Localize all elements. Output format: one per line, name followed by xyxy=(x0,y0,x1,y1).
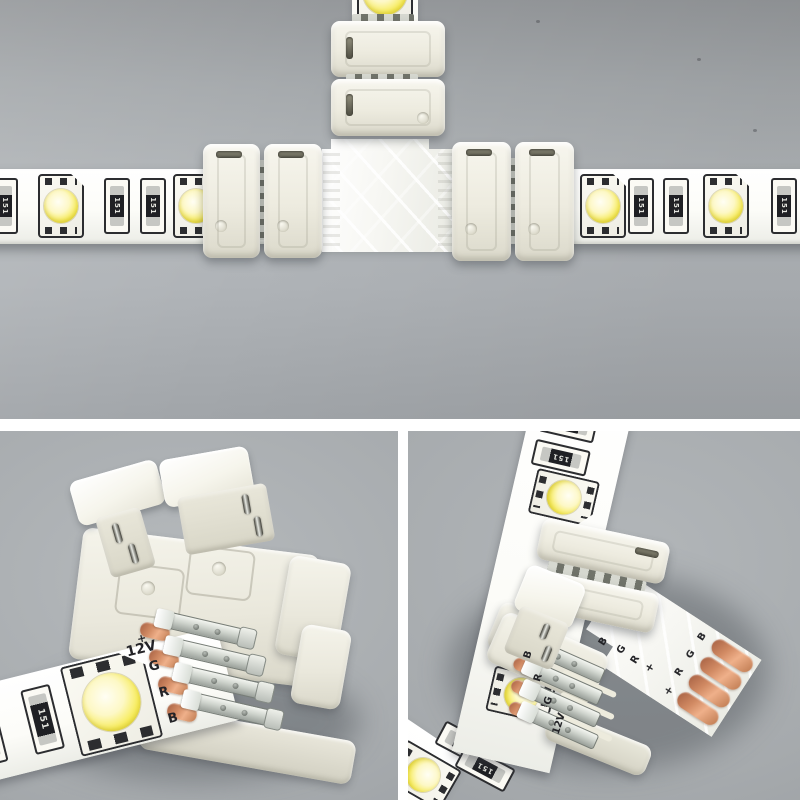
led-pad-row xyxy=(710,227,742,234)
led-pad-row xyxy=(533,476,547,509)
resistor-label: 151 xyxy=(1,197,9,215)
clip-half xyxy=(515,142,574,261)
led-phosphor xyxy=(543,477,584,518)
led-pad-row xyxy=(587,227,619,234)
led-pad-row xyxy=(710,178,742,185)
pin-dimple xyxy=(214,628,221,635)
clip-half xyxy=(331,79,445,136)
lid-pin-dash xyxy=(540,645,552,662)
clip-half xyxy=(264,144,322,258)
pcb-edge-ridges xyxy=(438,152,453,246)
resistor: 151 xyxy=(140,178,166,234)
clip-slot xyxy=(346,37,353,59)
led-phosphor xyxy=(586,189,620,223)
led-phosphor xyxy=(76,667,146,737)
led-pad-row xyxy=(581,487,595,520)
pin-dimple xyxy=(223,655,230,662)
led-phosphor xyxy=(44,189,78,223)
led-chip xyxy=(528,468,601,527)
resistor: 151 xyxy=(104,178,130,234)
pin-dimple xyxy=(232,682,239,689)
pin-foot xyxy=(171,662,193,685)
product-photo-collage: 151 151 151 151 151 151 xyxy=(0,0,800,800)
resistor: 151 xyxy=(663,178,689,234)
resistor: 151 xyxy=(20,684,65,755)
resistor-label: 151 xyxy=(149,197,157,215)
clip-slot xyxy=(466,149,492,156)
pin-dimple xyxy=(564,726,572,734)
clip-slot xyxy=(216,151,242,158)
pin-dimple xyxy=(571,660,579,668)
clip-slot xyxy=(529,149,555,156)
resistor-label: 151 xyxy=(113,197,121,215)
clip-half xyxy=(331,21,445,77)
lid-pin-dash xyxy=(127,543,139,564)
clip-slot xyxy=(634,547,659,559)
panel-t-pcb-closeup: 151 151 151 151 B G R + xyxy=(408,431,800,800)
led-pad-row xyxy=(45,227,77,234)
resistor: 151 xyxy=(771,178,797,234)
led-pad-row xyxy=(490,673,504,706)
lid-pin-dash xyxy=(111,523,123,544)
resistor-body xyxy=(0,710,1,759)
led-pad-row xyxy=(587,178,619,185)
pin-dimple xyxy=(220,704,227,711)
clip-dimple xyxy=(528,223,540,235)
pin-dimple xyxy=(568,682,576,690)
panel-open-clip-closeup: 151 151 + 12V G R B xyxy=(0,431,398,800)
pcb-edge-ridges xyxy=(323,152,340,246)
pin-foot xyxy=(180,689,202,712)
lid-pin-dash xyxy=(241,494,251,515)
pin-dimple xyxy=(202,650,209,657)
clip-half xyxy=(203,144,260,258)
led-chip xyxy=(703,174,749,238)
clip-dimple xyxy=(465,223,477,235)
pin-dimple xyxy=(552,675,560,683)
pin-foot xyxy=(153,608,175,631)
resistor-body xyxy=(547,431,589,436)
lid-pin-dash xyxy=(539,623,551,640)
pin-dimple xyxy=(193,623,200,630)
led-chip xyxy=(580,174,626,238)
panel-assembled-view: 151 151 151 151 151 151 xyxy=(0,0,800,419)
pin-dimple xyxy=(566,704,574,712)
resistor-label: 151 xyxy=(672,197,680,215)
led-phosphor xyxy=(709,189,743,223)
clip-dimple xyxy=(215,220,227,232)
resistor: 151 xyxy=(628,178,654,234)
dust-speck xyxy=(753,129,757,132)
resistor-partial: 151 xyxy=(0,701,9,769)
pin-dimple xyxy=(211,677,218,684)
dust-speck xyxy=(697,58,701,61)
resistor-label: 151 xyxy=(780,197,788,215)
resistor-label: 151 xyxy=(637,197,645,215)
pin-dimple xyxy=(241,709,248,716)
clip-slot xyxy=(278,151,304,158)
clip-slot xyxy=(346,94,353,116)
dust-speck xyxy=(536,20,540,23)
clip-dimple xyxy=(417,112,429,124)
pin-foot xyxy=(162,635,184,658)
resistor: 151 xyxy=(0,178,18,234)
led-pad-row xyxy=(45,178,77,185)
clip-dimple xyxy=(277,220,289,232)
led-chip xyxy=(38,174,84,238)
led-phosphor xyxy=(363,0,407,15)
lid-pin-dash xyxy=(253,516,263,537)
clip-half xyxy=(452,142,511,261)
